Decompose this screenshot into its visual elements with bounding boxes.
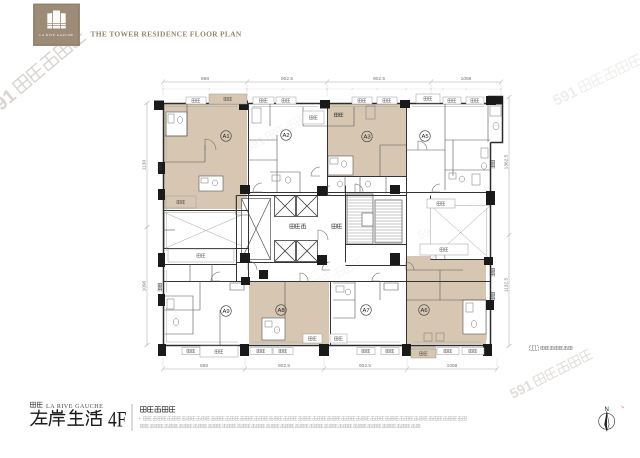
svg-text:LA RIVE GAUCHE: LA RIVE GAUCHE xyxy=(46,404,103,410)
svg-text:902.5: 902.5 xyxy=(359,363,371,369)
svg-text:868: 868 xyxy=(200,363,208,369)
svg-text:A6: A6 xyxy=(420,308,427,314)
svg-text:1090: 1090 xyxy=(142,280,148,291)
svg-text:902.5: 902.5 xyxy=(281,76,293,82)
svg-text:1362.5: 1362.5 xyxy=(504,154,510,169)
svg-text:4F: 4F xyxy=(108,407,127,432)
svg-text:1068: 1068 xyxy=(461,76,472,82)
svg-text:THE TOWER RESIDENCE FLOOR PLAN: THE TOWER RESIDENCE FLOOR PLAN xyxy=(91,29,242,38)
svg-text:A3: A3 xyxy=(363,135,370,141)
svg-text:902.5: 902.5 xyxy=(278,363,290,369)
svg-text:A9: A9 xyxy=(222,309,229,315)
svg-text:1132.5: 1132.5 xyxy=(504,278,510,293)
svg-text:902.5: 902.5 xyxy=(373,76,385,82)
svg-text:LA RIVE GAUCHE: LA RIVE GAUCHE xyxy=(39,33,73,37)
svg-text:A2: A2 xyxy=(282,133,289,139)
svg-text:A5: A5 xyxy=(421,134,428,140)
svg-text:1130: 1130 xyxy=(142,160,148,171)
svg-text:868: 868 xyxy=(201,76,209,82)
svg-text:A8: A8 xyxy=(277,308,284,314)
svg-text:A7: A7 xyxy=(362,308,369,314)
svg-text:A1: A1 xyxy=(222,134,229,140)
svg-text:1068: 1068 xyxy=(447,363,458,369)
